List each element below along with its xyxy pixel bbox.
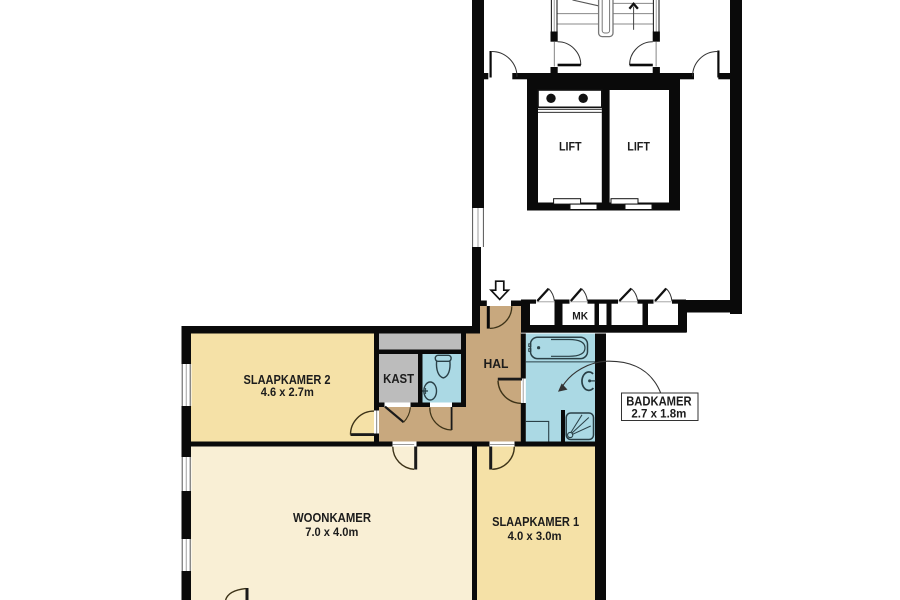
svg-text:7.0 x 4.0m: 7.0 x 4.0m [305,525,358,539]
svg-text:LIFT: LIFT [559,141,582,153]
svg-text:MK: MK [572,311,588,323]
svg-text:KAST: KAST [383,372,414,386]
svg-text:4.6 x 2.7m: 4.6 x 2.7m [261,385,314,399]
svg-text:LIFT: LIFT [627,141,650,153]
svg-text:HAL: HAL [484,357,509,371]
svg-text:WOONKAMER: WOONKAMER [293,511,371,525]
svg-text:SLAAPKAMER 1: SLAAPKAMER 1 [492,515,579,529]
svg-text:4.0 x 3.0m: 4.0 x 3.0m [508,529,562,543]
svg-text:2.7 x 1.8m: 2.7 x 1.8m [631,406,686,420]
